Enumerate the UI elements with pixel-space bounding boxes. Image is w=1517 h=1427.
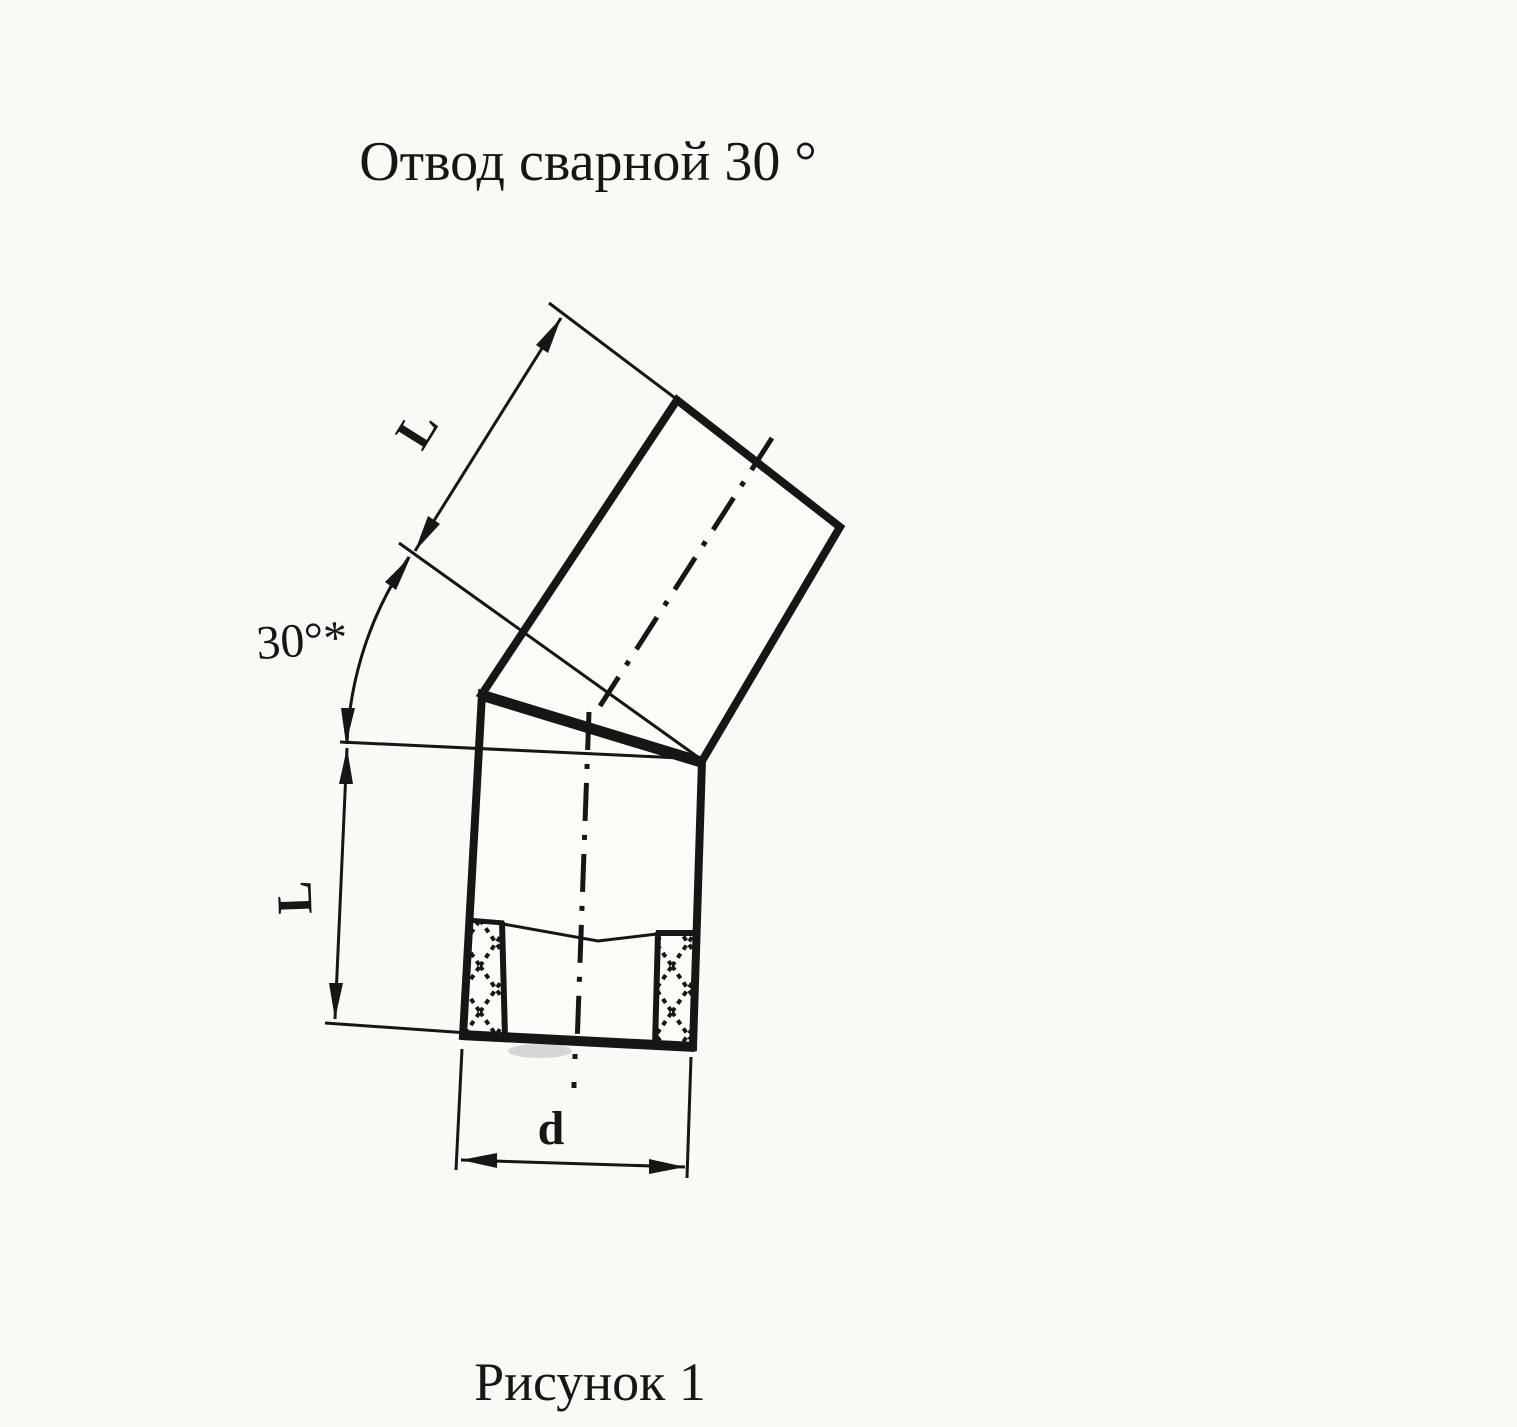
bore-top-edge-left — [467, 920, 504, 923]
scan-smudge — [508, 1044, 572, 1058]
angle-label: 30°* — [255, 611, 350, 670]
diameter-label: d — [538, 1102, 565, 1155]
wall-section-hatch-right — [655, 933, 696, 1045]
scanned-drawing-page: L 30°* L d Отвод сварной 30 ° Рисунок 1 — [0, 0, 1517, 1427]
figure-caption: Рисунок 1 — [474, 1352, 706, 1412]
bore-inner-line-left — [502, 922, 505, 1037]
bore-inner-line-right — [655, 932, 658, 1046]
paper-background — [0, 0, 1517, 1427]
drawing-title: Отвод сварной 30 ° — [359, 131, 817, 193]
elbow-drawing: L 30°* L d Отвод сварной 30 ° Рисунок 1 — [0, 0, 1517, 1427]
wall-section-hatch-left — [464, 921, 505, 1036]
lower-length-label: L — [265, 880, 322, 915]
